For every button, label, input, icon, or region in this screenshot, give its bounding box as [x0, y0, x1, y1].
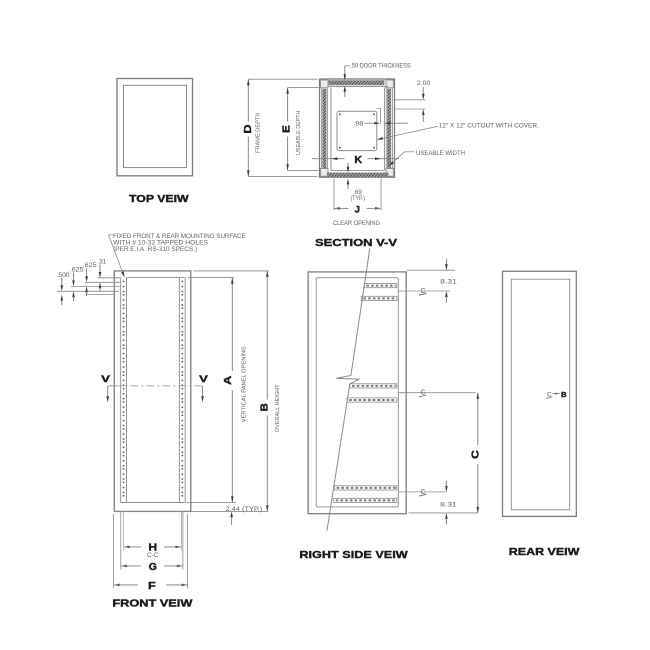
svg-text:FRAME DEPTH: FRAME DEPTH	[256, 113, 262, 154]
svg-text:V: V	[101, 374, 111, 385]
svg-text:A: A	[223, 375, 234, 385]
svg-text:K: K	[354, 155, 362, 166]
svg-text:FRONT VEIW: FRONT VEIW	[112, 598, 193, 609]
svg-text:E: E	[281, 125, 292, 133]
svg-text:8.31: 8.31	[440, 279, 457, 286]
svg-text:V: V	[199, 374, 209, 385]
svg-text:H: H	[148, 542, 157, 553]
svg-text:8.31: 8.31	[440, 502, 457, 509]
svg-text:TOP VEIW: TOP VEIW	[129, 194, 189, 205]
svg-text:2.00: 2.00	[417, 80, 431, 87]
svg-text:RIGHT SIDE VEIW: RIGHT SIDE VEIW	[299, 550, 408, 561]
svg-text:.50 DOOR THICKNESS: .50 DOOR THICKNESS	[350, 63, 411, 70]
svg-text:OVERALL HEIGHT: OVERALL HEIGHT	[275, 384, 281, 433]
svg-text:C-C: C-C	[147, 553, 159, 559]
svg-text:.98: .98	[353, 120, 363, 127]
svg-text:SECTION V-V: SECTION V-V	[315, 238, 397, 249]
svg-text:B: B	[561, 390, 567, 399]
svg-text:G: G	[149, 562, 157, 573]
svg-text:VERTICAL PANEL OPENING: VERTICAL PANEL OPENING	[242, 346, 248, 422]
svg-text:C: C	[471, 449, 482, 458]
svg-text:REAR VEIW: REAR VEIW	[509, 547, 580, 558]
svg-text:CLEAR OPENING: CLEAR OPENING	[333, 220, 380, 227]
svg-text:.625: .625	[83, 262, 97, 269]
svg-text:USEABLE WIDTH: USEABLE WIDTH	[416, 150, 465, 157]
svg-text:(TYP.): (TYP.)	[351, 195, 366, 202]
svg-text:.500: .500	[57, 272, 70, 279]
svg-text:USEABLE DEPTH: USEABLE DEPTH	[296, 111, 302, 155]
svg-text:D: D	[243, 124, 254, 133]
svg-text:F: F	[148, 581, 156, 592]
svg-text:J: J	[355, 205, 360, 216]
svg-text:(PER E.I.A. RS-310 SPECS.): (PER E.I.A. RS-310 SPECS.)	[113, 246, 197, 253]
svg-text:12″ X 12″ CUTOUT WITH COVER.: 12″ X 12″ CUTOUT WITH COVER.	[439, 122, 539, 129]
svg-text:B: B	[260, 403, 271, 411]
svg-text:2.44 (TYP.): 2.44 (TYP.)	[226, 506, 263, 513]
svg-text:.31: .31	[97, 259, 106, 266]
